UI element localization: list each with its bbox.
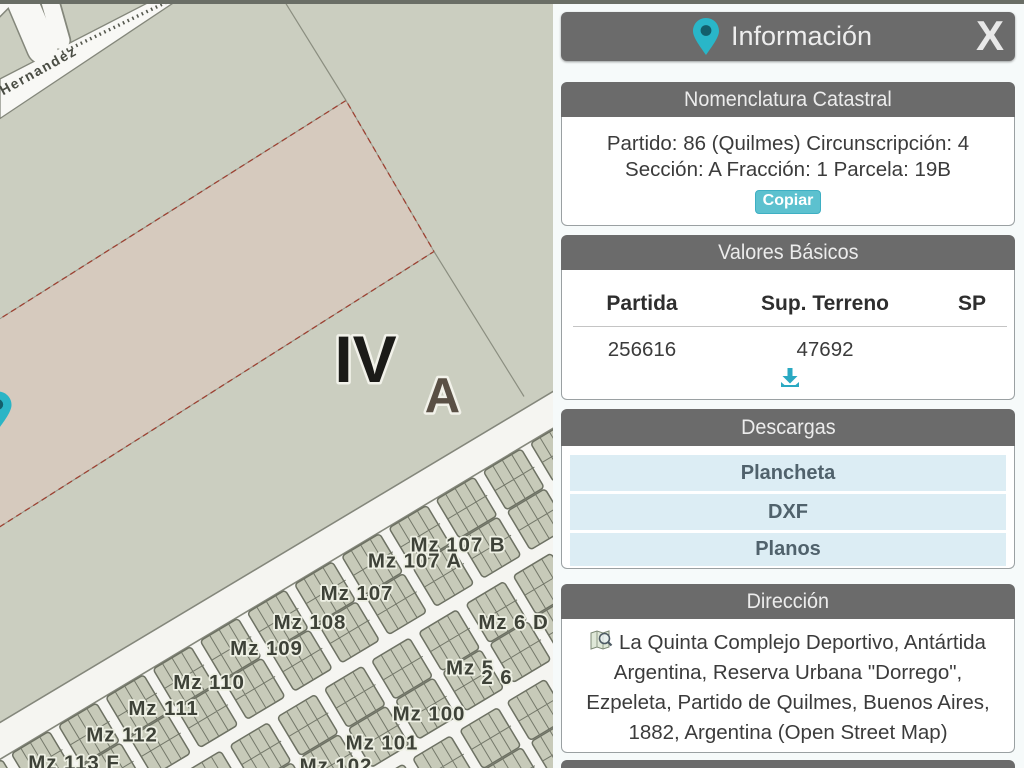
svg-text:A: A	[425, 369, 460, 423]
svg-text:Mz 113 F: Mz 113 F	[28, 751, 120, 768]
svg-text:Mz 107: Mz 107	[321, 582, 394, 605]
svg-text:Mz 112: Mz 112	[86, 723, 158, 746]
svg-text:Mz 108: Mz 108	[274, 611, 347, 634]
svg-text:Mz 102: Mz 102	[300, 754, 373, 768]
svg-text:Mz 100: Mz 100	[393, 702, 466, 725]
svg-text:Mz 111: Mz 111	[128, 697, 198, 720]
svg-text:2 6: 2 6	[481, 666, 512, 689]
svg-text:Mz 107 A: Mz 107 A	[368, 549, 462, 572]
svg-text:Mz 109: Mz 109	[230, 637, 303, 660]
svg-text:Mz 110: Mz 110	[173, 671, 245, 694]
svg-text:Mz 101: Mz 101	[346, 731, 419, 754]
svg-text:Mz 6 D: Mz 6 D	[478, 611, 548, 634]
svg-text:IV: IV	[334, 322, 396, 396]
